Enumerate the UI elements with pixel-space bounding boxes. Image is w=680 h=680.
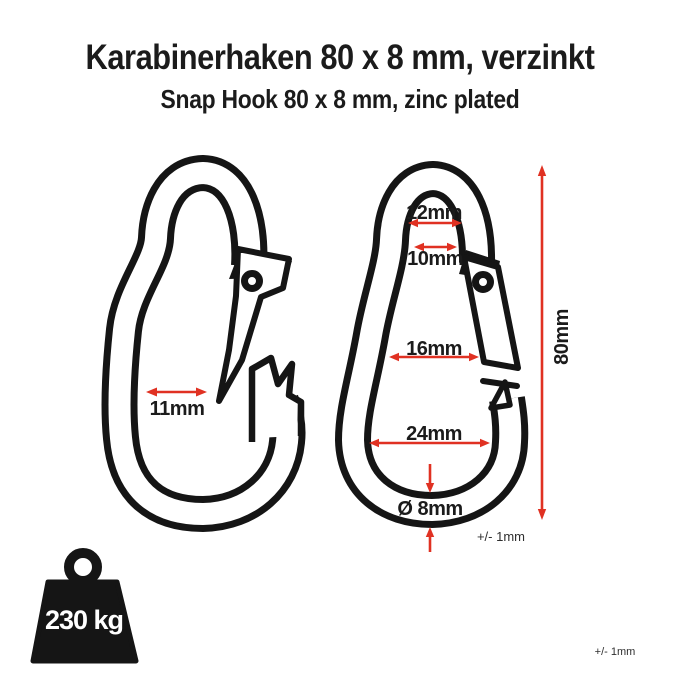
- arrow-diameter-down: [426, 464, 434, 493]
- tolerance-note-diameter: +/- 1mm: [466, 530, 536, 543]
- left-carabiner-drawing: [120, 173, 301, 514]
- dimension-label-bottom-inner-width: 24mm: [404, 424, 464, 444]
- dimension-label-total-length: 80mm: [552, 307, 572, 367]
- load-capacity-label: 230 kg: [32, 607, 136, 634]
- right-gate-bar: [464, 257, 518, 368]
- dimension-label-top-neck-width: 10mm: [404, 249, 466, 269]
- left-gate-rivet: [245, 274, 260, 289]
- dimension-label-gate-opening: 11mm: [146, 399, 208, 419]
- product-diagram: Karabinerhaken 80 x 8 mm, verzinkt Snap …: [0, 0, 680, 680]
- dimension-label-middle-inner-width: 16mm: [404, 339, 464, 359]
- dimension-label-top-inner-width: 12mm: [404, 203, 464, 223]
- arrow-diameter-up: [426, 527, 434, 552]
- arrow-80mm: [538, 165, 546, 520]
- right-hook-claw-notch: [491, 382, 510, 408]
- right-gate-latch-line: [483, 381, 517, 386]
- arrow-11mm: [146, 388, 207, 397]
- tolerance-note-general: +/- 1mm: [580, 647, 650, 658]
- weight-icon-ring: [69, 553, 97, 581]
- page-title: Karabinerhaken 80 x 8 mm, verzinkt: [41, 38, 639, 78]
- page-subtitle: Snap Hook 80 x 8 mm, zinc plated: [41, 84, 639, 115]
- right-gate-rivet: [476, 275, 491, 290]
- dimension-label-wire-diameter: Ø 8mm: [396, 499, 464, 519]
- left-carabiner-wire-outline: [120, 173, 288, 514]
